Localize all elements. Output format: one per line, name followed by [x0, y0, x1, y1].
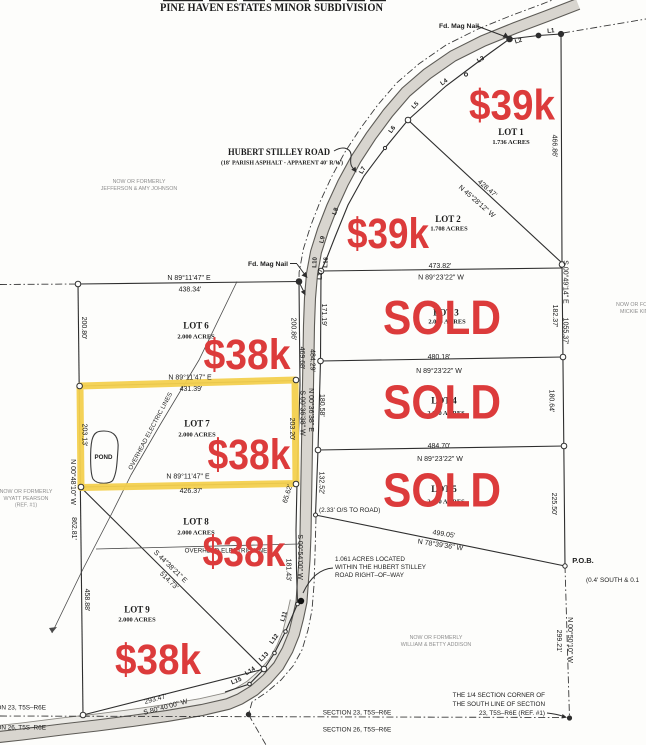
svg-text:$39k: $39k	[347, 210, 429, 258]
svg-text:431.39': 431.39'	[180, 386, 203, 393]
svg-text:458.88': 458.88'	[83, 589, 90, 612]
svg-text:WILLIAM & BETTY ADDISON: WILLIAM & BETTY ADDISON	[401, 642, 472, 648]
svg-text:862.81': 862.81'	[70, 517, 77, 540]
svg-text:N 00°48’10" W: N 00°48’10" W	[69, 459, 77, 505]
svg-text:426.37': 426.37'	[180, 488, 203, 495]
svg-text:NOW OR FORMERLY: NOW OR FORMERLY	[0, 489, 53, 495]
svg-text:MICKIE KING: MICKIE KING	[620, 309, 646, 315]
svg-text:Fd. Mag Nail: Fd. Mag Nail	[439, 23, 479, 30]
svg-text:S 00°49’14" E: S 00°49’14" E	[562, 260, 570, 304]
svg-text:LOT 7: LOT 7	[184, 419, 210, 429]
svg-text:438.34': 438.34'	[179, 287, 202, 294]
svg-text:THE 1/4 SECTION CORNER OF: THE 1/4 SECTION CORNER OF	[453, 692, 546, 699]
svg-text:LOT 9: LOT 9	[124, 605, 150, 615]
svg-text:$38k: $38k	[203, 528, 286, 576]
svg-text:N 89°11’47" E: N 89°11’47" E	[166, 473, 210, 481]
svg-text:182.37': 182.37'	[551, 305, 558, 328]
svg-text:1.061 ACRES LOCATED: 1.061 ACRES LOCATED	[335, 556, 405, 563]
svg-text:2.000 ACRES: 2.000 ACRES	[118, 617, 156, 624]
svg-text:132.52': 132.52'	[318, 472, 325, 495]
svg-text:JEFFERSON & AMY JOHNSON: JEFFERSON & AMY JOHNSON	[101, 186, 178, 192]
svg-text:(REF. #1): (REF. #1)	[15, 503, 38, 509]
svg-text:S 00°54’00" W: S 00°54’00" W	[296, 534, 304, 580]
svg-text:203.13': 203.13'	[81, 424, 88, 447]
svg-text:(2.33' O/S TO ROAD): (2.33' O/S TO ROAD)	[319, 507, 380, 514]
svg-text:LOT 6: LOT 6	[183, 321, 209, 331]
svg-text:(0.4' SOUTH & 0.1: (0.4' SOUTH & 0.1	[586, 577, 640, 584]
svg-text:SECTION 26, T5S–R6E: SECTION 26, T5S–R6E	[323, 727, 391, 734]
svg-text:NOW OR FORMERLY: NOW OR FORMERLY	[410, 635, 463, 641]
svg-text:N 89°11’47" E: N 89°11’47" E	[167, 274, 211, 282]
svg-text:469.68': 469.68'	[298, 347, 305, 370]
svg-text:171.19': 171.19'	[320, 304, 327, 327]
svg-text:NOW OR FORMERLY: NOW OR FORMERLY	[616, 302, 646, 308]
svg-text:L10: L10	[311, 256, 319, 268]
svg-text:1.736 ACRES: 1.736 ACRES	[492, 139, 530, 146]
svg-text:L17: L17	[317, 268, 325, 280]
svg-text:PINE HAVEN ESTATES MINOR SUBDI: PINE HAVEN ESTATES MINOR SUBDIVISION	[160, 0, 383, 14]
svg-text:SECTION 26, T5S–R6E: SECTION 26, T5S–R6E	[0, 725, 46, 732]
svg-text:$38k: $38k	[208, 431, 291, 479]
svg-text:NOW OR FORMERLY: NOW OR FORMERLY	[113, 179, 166, 185]
svg-text:N 89°23’22" W: N 89°23’22" W	[416, 367, 462, 375]
svg-text:ROAD RIGHT–OF–WAY: ROAD RIGHT–OF–WAY	[335, 572, 405, 579]
svg-text:L1: L1	[547, 27, 555, 35]
svg-text:N 00°36’38" E: N 00°36’38" E	[307, 388, 315, 432]
svg-text:$39k: $39k	[469, 82, 555, 130]
svg-text:Fd. Mag Nail: Fd. Mag Nail	[248, 261, 288, 268]
svg-text:N 00°50’10" W: N 00°50’10" W	[566, 617, 574, 663]
svg-text:SECTION 23, T5S–R6E: SECTION 23, T5S–R6E	[323, 710, 391, 717]
svg-text:180.58': 180.58'	[318, 394, 325, 417]
svg-text:180.64': 180.64'	[548, 390, 555, 413]
svg-text:$38k: $38k	[204, 331, 291, 379]
svg-text:181.43': 181.43'	[285, 559, 292, 582]
svg-text:473.82': 473.82'	[429, 263, 452, 270]
svg-text:SECTION 23, T5S–R6E: SECTION 23, T5S–R6E	[0, 705, 46, 712]
svg-text:L16: L16	[322, 256, 330, 268]
svg-text:484.29': 484.29'	[309, 349, 316, 372]
svg-text:466.86': 466.86'	[551, 135, 558, 158]
svg-text:N 89°23’22" W: N 89°23’22" W	[417, 455, 463, 463]
svg-text:N 89°23’22" W: N 89°23’22" W	[418, 274, 464, 282]
svg-text:THE SOUTH LINE OF SECTION: THE SOUTH LINE OF SECTION	[453, 701, 546, 708]
svg-text:LOT 8: LOT 8	[183, 517, 209, 527]
svg-text:P.O.B.: P.O.B.	[572, 556, 594, 565]
svg-text:200.80': 200.80'	[80, 317, 87, 340]
svg-text:200.86': 200.86'	[290, 318, 297, 341]
svg-text:1.708 ACRES: 1.708 ACRES	[430, 226, 468, 233]
svg-text:SOLD: SOLD	[383, 292, 501, 345]
svg-text:484.70': 484.70'	[428, 443, 451, 450]
svg-text:WITHIN THE HUBERT STILLEY: WITHIN THE HUBERT STILLEY	[335, 564, 427, 571]
svg-text:23, T5S–R6E (REF. #1): 23, T5S–R6E (REF. #1)	[479, 710, 545, 717]
svg-text:225.50': 225.50'	[550, 493, 557, 516]
svg-text:(18' PARISH ASPHALT - APPARENT: (18' PARISH ASPHALT - APPARENT 40' R/W)	[221, 160, 343, 167]
svg-text:299.21': 299.21'	[555, 630, 562, 653]
svg-text:480.18': 480.18'	[428, 354, 451, 361]
svg-text:SOLD: SOLD	[383, 377, 501, 430]
svg-text:POND: POND	[95, 454, 113, 461]
svg-text:$38k: $38k	[115, 636, 201, 684]
svg-text:LOT 2: LOT 2	[435, 214, 461, 224]
svg-text:S 00°36’38" W: S 00°36’38" W	[299, 390, 307, 436]
svg-text:1055.37': 1055.37'	[562, 318, 569, 345]
svg-text:WYATT PEARSON: WYATT PEARSON	[3, 496, 48, 502]
svg-text:HUBERT STILLEY ROAD: HUBERT STILLEY ROAD	[228, 148, 330, 158]
svg-text:SOLD: SOLD	[383, 465, 501, 518]
